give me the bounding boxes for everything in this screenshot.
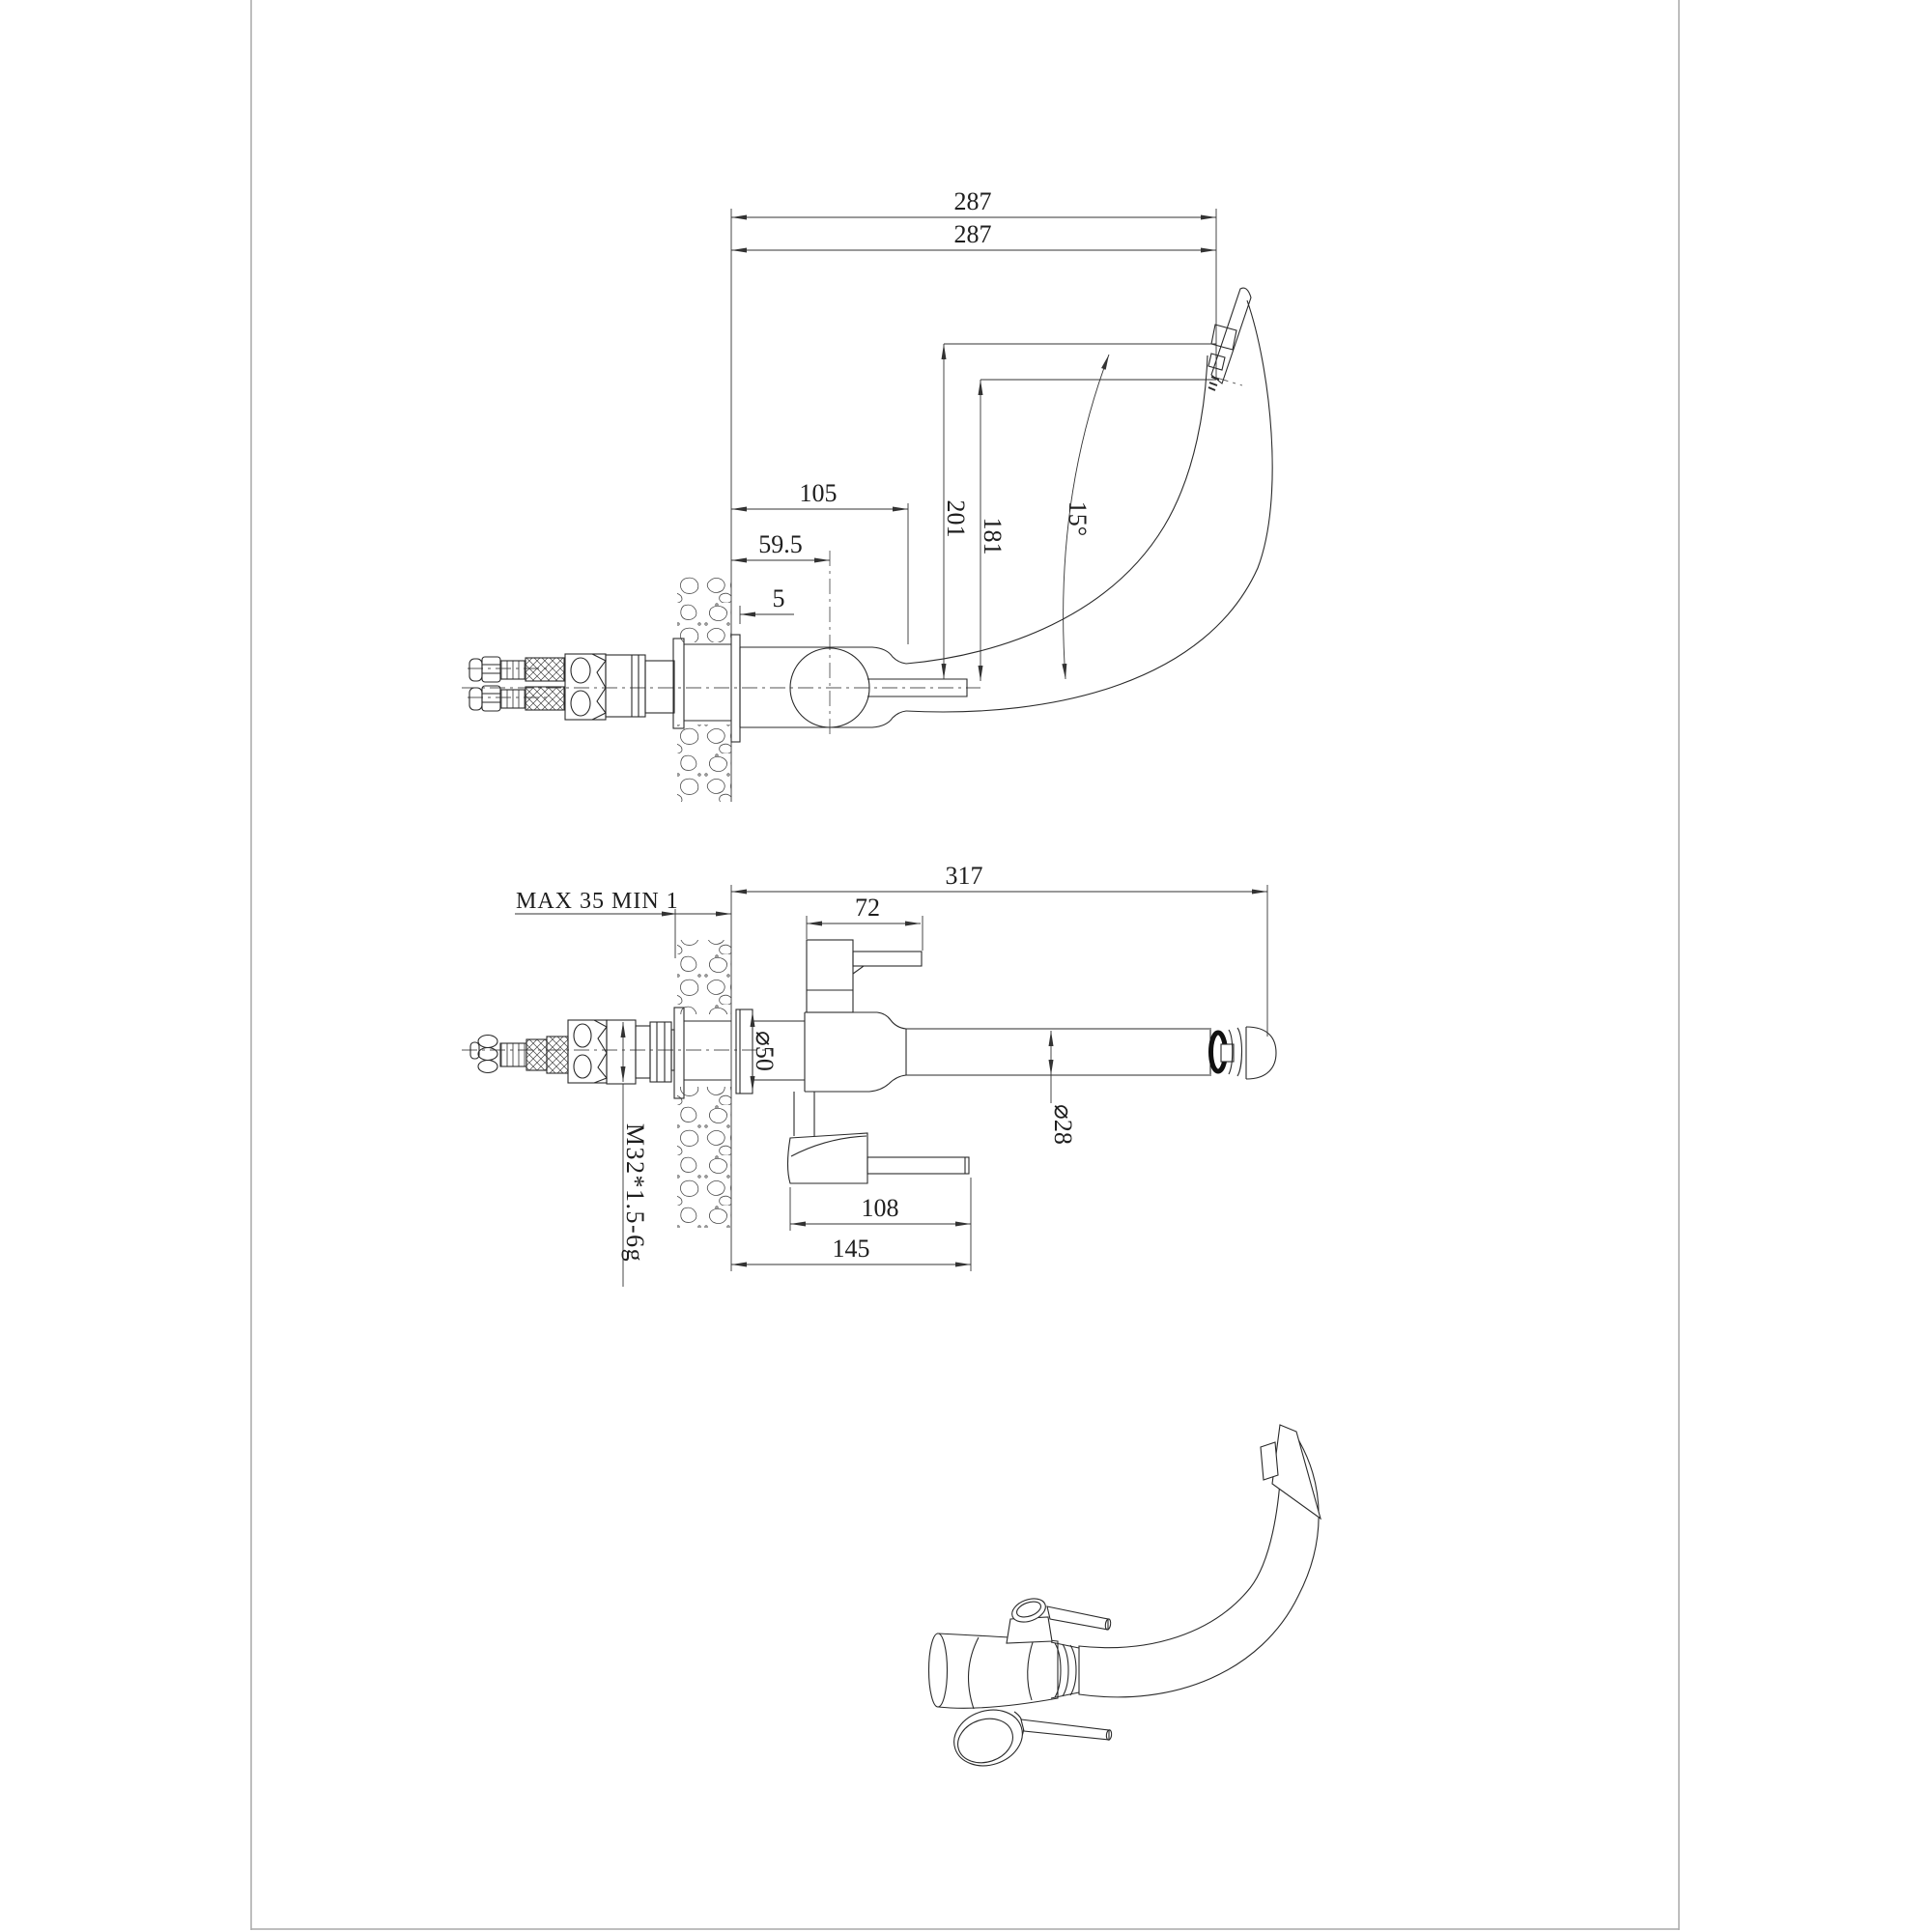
faucet-body-front [736, 940, 1276, 1183]
thread-spec: M32*1.5-6g [621, 1123, 649, 1263]
dim-reach-upper: 287 [954, 187, 992, 215]
faucet-body-side [731, 288, 1272, 742]
dim-body-length: 105 [800, 479, 838, 507]
isometric-view [929, 1425, 1321, 1775]
supply-hose-mid [470, 1008, 731, 1098]
wall-section-hatch-mid [677, 940, 731, 1228]
supply-hoses [469, 639, 731, 728]
dim-height-inner: 181 [979, 518, 1007, 555]
dim-lever-length: 108 [862, 1194, 899, 1222]
middle-view-dimension-labels: 317 72 MAX 35 MIN 1 ⌀50 ⌀28 M32*1.5-6g 1… [516, 862, 1077, 1263]
drawing-sheet: 287 287 105 59.5 5 201 181 15° [0, 0, 1932, 1932]
dim-spout-diameter: ⌀28 [1049, 1104, 1077, 1145]
dim-total-length: 317 [946, 862, 983, 890]
wall-thickness-note: MAX 35 MIN 1 [516, 889, 679, 914]
centerlines [462, 377, 1242, 734]
top-view-dimension-labels: 287 287 105 59.5 5 201 181 15° [758, 187, 1092, 612]
dim-reach-lower: 287 [954, 220, 992, 248]
top-view-side-elevation: 287 287 105 59.5 5 201 181 15° [462, 187, 1272, 802]
faucet-technical-drawing: 287 287 105 59.5 5 201 181 15° [0, 0, 1932, 1932]
dim-lever-total: 145 [833, 1235, 870, 1263]
dim-height-outer: 201 [942, 500, 970, 538]
dim-plate-gap: 5 [773, 584, 785, 612]
dim-center-offset: 59.5 [758, 530, 803, 558]
dim-tip-angle: 15° [1064, 501, 1092, 536]
dim-handle-length: 72 [855, 894, 880, 922]
middle-view-front-elevation: 317 72 MAX 35 MIN 1 ⌀50 ⌀28 M32*1.5-6g 1… [462, 862, 1276, 1287]
wall-section-hatch [677, 577, 731, 802]
dim-flange-diameter: ⌀50 [751, 1031, 779, 1071]
